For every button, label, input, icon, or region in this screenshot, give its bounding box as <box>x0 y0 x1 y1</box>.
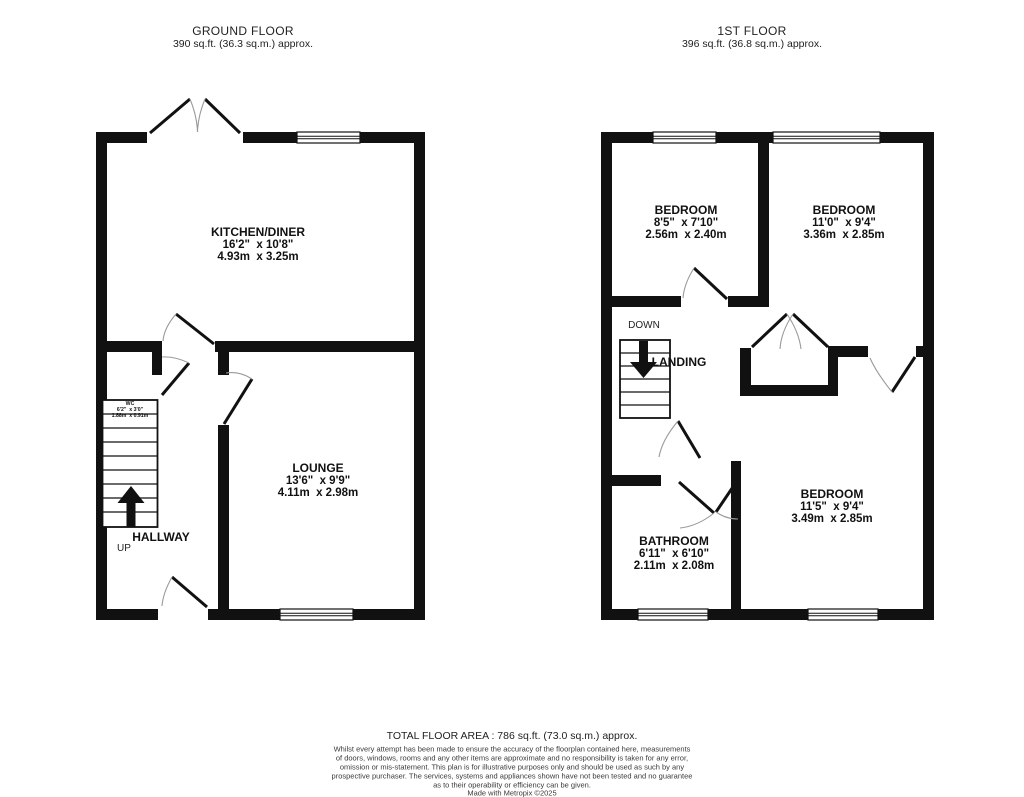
kitchen-label: KITCHEN/DINER 16'2" x 10'8" 4.93m x 3.25… <box>211 225 305 263</box>
wall-segment <box>740 385 838 396</box>
wall-segment <box>878 609 934 620</box>
room-label-bedroom2-metric: 3.36m x 2.85m <box>803 229 884 241</box>
wall-segment <box>96 609 158 620</box>
bedroom1-door <box>683 268 727 299</box>
up-label: UP <box>117 543 131 554</box>
wall-segment <box>96 132 147 143</box>
wall-segment <box>360 132 425 143</box>
window-frame <box>653 132 716 143</box>
room-label-kitchen-metric: 4.93m x 3.25m <box>217 251 298 263</box>
room-label-bedroom1-imperial: 8'5" x 7'10" <box>654 217 718 229</box>
door-leaf <box>793 314 828 347</box>
door-swing-arc <box>162 357 189 363</box>
disclaimer-line: prospective purchaser. The services, sys… <box>332 772 693 781</box>
bedroom2-window <box>773 132 880 143</box>
wall-segment <box>708 609 808 620</box>
room-label-kitchen-name: KITCHEN/DINER <box>211 225 305 239</box>
door-leaf <box>150 99 190 133</box>
room-label-lounge-name: LOUNGE <box>292 461 343 475</box>
door-leaf <box>172 577 207 607</box>
room-label-wc-metric: 1.88m x 0.91m <box>112 413 149 419</box>
first-floor-plan: BEDROOM 8'5" x 7'10" 2.56m x 2.40m BEDRO… <box>601 132 934 620</box>
bedroom3-door <box>870 357 915 392</box>
room-label-bathroom-metric: 2.11m x 2.08m <box>634 560 715 572</box>
door-leaf <box>694 268 727 299</box>
room-label-bedroom2-imperial: 11'0" x 9'4" <box>812 217 876 229</box>
room-label-lounge-imperial: 13'6" x 9'9" <box>286 475 350 487</box>
bedroom2-label: BEDROOM 11'0" x 9'4" 3.36m x 2.85m <box>803 203 884 241</box>
door-swing-arc <box>162 577 172 606</box>
door-leaf <box>678 421 700 458</box>
up-arrow-shaft <box>127 503 136 527</box>
bedroom1-label: BEDROOM 8'5" x 7'10" 2.56m x 2.40m <box>645 203 726 241</box>
ground-floor-plan: KITCHEN/DINER 16'2" x 10'8" 4.93m x 3.25… <box>96 99 425 620</box>
door-swing-arc <box>226 373 252 379</box>
door-swing-arc <box>190 99 198 132</box>
door-swing-arc <box>680 513 714 528</box>
wall-segment <box>243 132 297 143</box>
wall-segment <box>218 352 229 375</box>
kitchen-window <box>297 132 360 143</box>
wall-segment <box>758 143 769 305</box>
down-label: DOWN <box>628 320 660 331</box>
wall-segment <box>601 132 653 143</box>
total-floor-area: TOTAL FLOOR AREA : 786 sq.ft. (73.0 sq.m… <box>387 730 638 742</box>
wall-segment <box>612 296 681 307</box>
room-label-lounge-metric: 4.11m x 2.98m <box>278 487 359 499</box>
wc-door <box>162 357 189 395</box>
window-frame <box>280 609 353 620</box>
door-leaf <box>205 99 240 133</box>
bathroom-window <box>638 609 708 620</box>
room-label-bathroom-imperial: 6'11" x 6'10" <box>639 548 709 560</box>
wall-segment <box>601 132 612 620</box>
first-floor-title: 1ST FLOOR <box>717 24 786 38</box>
stairs-up <box>103 400 158 527</box>
room-label-bedroom1-metric: 2.56m x 2.40m <box>645 229 726 241</box>
room-label-bedroom3-imperial: 11'5" x 9'4" <box>800 501 864 513</box>
floorplan-canvas: GROUND FLOOR 390 sq.ft. (36.3 sq.m.) app… <box>0 0 1024 797</box>
first-floor-area: 396 sq.ft. (36.8 sq.m.) approx. <box>682 38 822 50</box>
wall-segment <box>916 346 934 357</box>
disclaimer-line: Whilst every attempt has been made to en… <box>334 745 691 754</box>
first-floor-header: 1ST FLOOR 396 sq.ft. (36.8 sq.m.) approx… <box>682 24 822 50</box>
wall-segment <box>923 132 934 620</box>
wall-segment <box>215 341 414 352</box>
lounge-label: LOUNGE 13'6" x 9'9" 4.11m x 2.98m <box>278 461 359 499</box>
down-arrow-shaft <box>639 341 648 363</box>
bathroom-label: BATHROOM 6'11" x 6'10" 2.11m x 2.08m <box>634 534 715 572</box>
lounge-window <box>280 609 353 620</box>
wall-segment <box>152 341 162 375</box>
french-doors <box>150 99 240 133</box>
room-label-bedroom1-name: BEDROOM <box>655 203 718 217</box>
door-leaf <box>892 357 915 392</box>
disclaimer-line: of doors, windows, rooms and any other i… <box>336 754 688 763</box>
door-swing-arc <box>198 99 206 132</box>
landing-label: LANDING <box>652 355 707 369</box>
bedroom1-window <box>653 132 716 143</box>
kitchen-door <box>163 314 214 344</box>
door-leaf <box>162 363 189 395</box>
wall-segment <box>208 609 280 620</box>
room-label-bathroom-name: BATHROOM <box>639 534 709 548</box>
door-swing-arc <box>659 421 678 457</box>
wall-segment <box>612 475 661 486</box>
wall-segment <box>353 609 425 620</box>
wall-segment <box>880 132 934 143</box>
door-leaf <box>679 482 714 513</box>
room-label-kitchen-imperial: 16'2" x 10'8" <box>223 239 294 251</box>
bedroom2-door <box>752 314 828 349</box>
wall-segment <box>838 346 868 357</box>
credit-line: Made with Metropix ©2025 <box>467 789 556 797</box>
bathroom-door <box>679 478 739 528</box>
window-frame <box>297 132 360 143</box>
hallway-label: HALLWAY <box>132 530 190 544</box>
room-label-bedroom2-name: BEDROOM <box>813 203 876 217</box>
door-leaf <box>752 314 787 347</box>
wall-segment <box>728 296 769 307</box>
door-leaf <box>224 379 252 424</box>
bedroom3-label: BEDROOM 11'5" x 9'4" 3.49m x 2.85m <box>791 487 872 525</box>
ground-walls <box>96 132 425 620</box>
bedroom3-window <box>808 609 878 620</box>
door-swing-arc <box>870 358 892 392</box>
wall-segment <box>218 425 229 609</box>
window-frame <box>638 609 708 620</box>
landing-door <box>659 421 700 458</box>
footer: TOTAL FLOOR AREA : 786 sq.ft. (73.0 sq.m… <box>332 730 693 797</box>
door-leaf <box>176 314 214 344</box>
front-door <box>162 577 207 607</box>
wall-segment <box>414 132 425 620</box>
window-frame <box>808 609 878 620</box>
window-frame <box>773 132 880 143</box>
room-label-bedroom3-name: BEDROOM <box>801 487 864 501</box>
ground-floor-title: GROUND FLOOR <box>192 24 294 38</box>
disclaimer-line: omission or mis-statement. This plan is … <box>340 763 684 772</box>
lounge-door <box>224 373 252 424</box>
floorplan-page: GROUND FLOOR 390 sq.ft. (36.3 sq.m.) app… <box>0 0 1024 797</box>
wall-segment <box>601 609 638 620</box>
wall-segment <box>716 132 773 143</box>
stairs-down <box>620 340 670 418</box>
ground-floor-header: GROUND FLOOR 390 sq.ft. (36.3 sq.m.) app… <box>173 24 313 50</box>
wall-segment <box>96 132 107 620</box>
room-label-bedroom3-metric: 3.49m x 2.85m <box>791 513 872 525</box>
door-swing-arc <box>683 268 694 298</box>
door-swing-arc <box>163 314 176 341</box>
wall-segment <box>828 346 838 396</box>
ground-floor-area: 390 sq.ft. (36.3 sq.m.) approx. <box>173 38 313 50</box>
